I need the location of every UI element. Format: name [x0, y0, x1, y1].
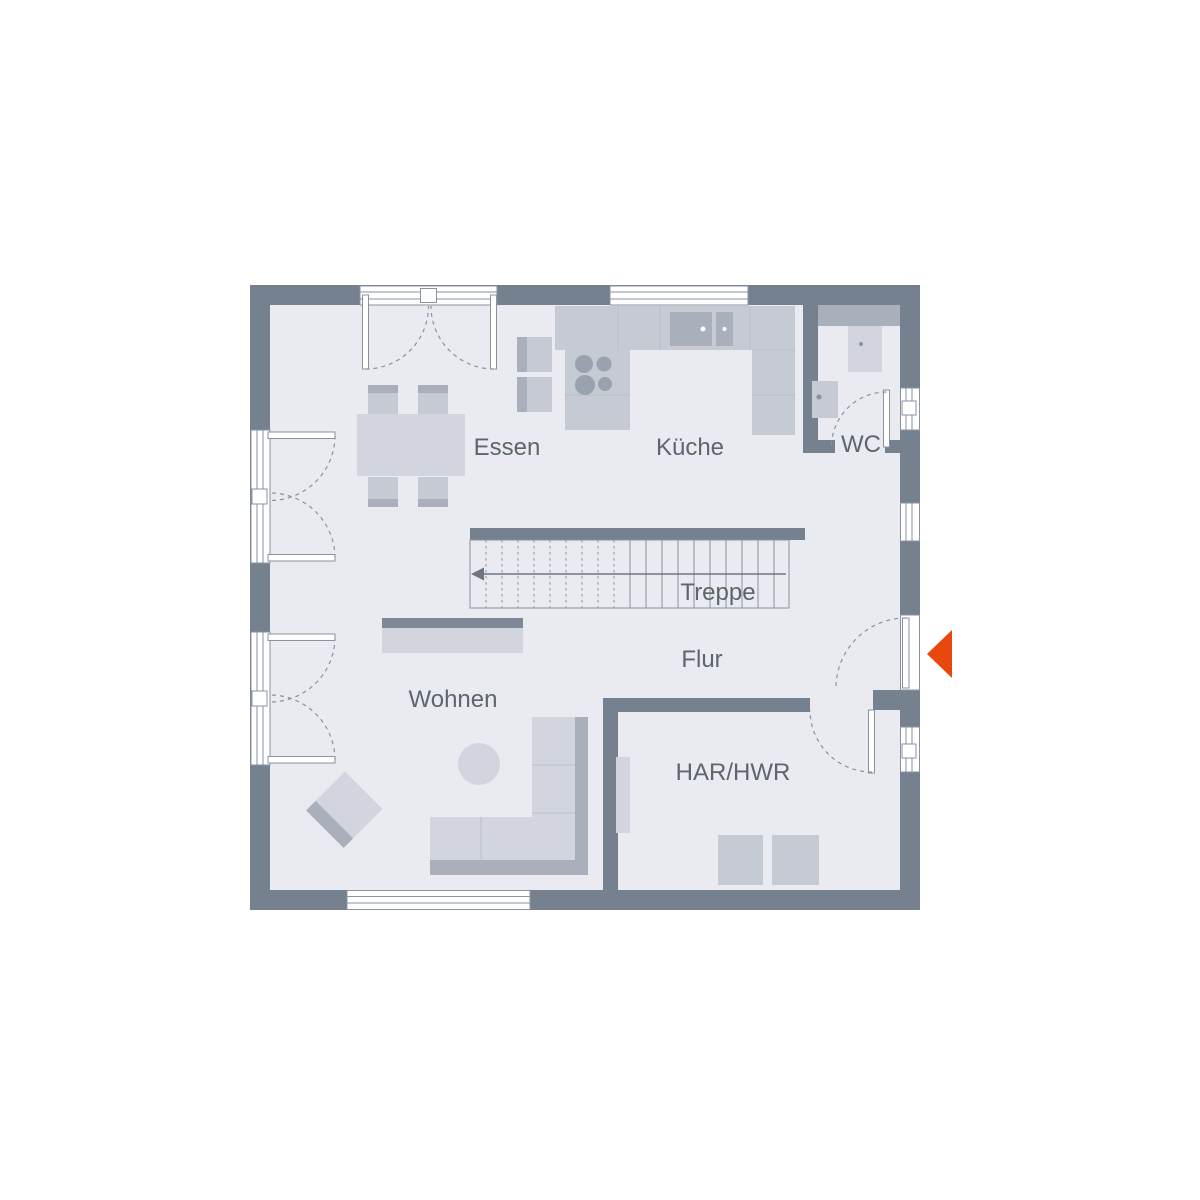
window-frame: [610, 286, 748, 305]
dining-chair: [368, 385, 398, 415]
dining-chair: [418, 385, 448, 415]
burner: [598, 377, 612, 391]
wc-window: [901, 388, 920, 430]
door-leaf-right: [491, 295, 497, 369]
door-handle: [252, 489, 267, 504]
burner: [597, 357, 612, 372]
room-label-kueche: Küche: [656, 434, 724, 461]
dining-chair: [418, 477, 448, 507]
kitchen-counter-right: [752, 306, 795, 435]
utility-top-wall: [603, 698, 810, 712]
utility-window: [901, 727, 920, 772]
door-leaf-top: [268, 432, 335, 439]
burner: [575, 355, 593, 373]
window-frame: [347, 891, 530, 910]
stairs-upper-flight-wall: [470, 528, 805, 540]
room-label-treppe: Treppe: [680, 579, 755, 606]
door-leaf: [903, 618, 910, 688]
sofa-backrest-bottom: [430, 860, 588, 875]
door-leaf-bottom: [268, 757, 335, 764]
wc-toilet: [812, 381, 838, 418]
tall-cabinet: [517, 377, 552, 412]
faucet-dot: [723, 327, 727, 331]
burner: [575, 375, 595, 395]
room-label-har-hwr: HAR/HWR: [676, 759, 791, 786]
sofa-backrest-right: [575, 717, 588, 875]
wc-counter: [818, 305, 900, 326]
door-handle: [421, 289, 437, 303]
door-leaf-top: [268, 634, 335, 641]
coffee-table: [458, 743, 500, 785]
utility-left-wall: [603, 700, 618, 890]
sofa-seats-vertical: [532, 717, 575, 860]
door-leaf-bottom: [268, 555, 335, 562]
dryer: [772, 835, 819, 885]
dining-table: [357, 414, 465, 476]
hall-furniture: [382, 618, 523, 653]
wc-left-wall: [803, 305, 818, 453]
toilet-dot: [817, 395, 822, 400]
dining-chair: [368, 477, 398, 507]
door-leaf-left: [363, 295, 369, 369]
entrance-arrow-icon: [927, 630, 952, 678]
wc-bottom-wall: [803, 440, 835, 453]
kitchen-sink: [670, 312, 712, 346]
room-label-wohnen: Wohnen: [409, 686, 498, 713]
kitchen-window: [610, 286, 748, 305]
faucet-dot: [701, 327, 706, 332]
living-room-window: [347, 891, 530, 910]
window-handle: [902, 744, 916, 758]
window-handle: [902, 401, 916, 415]
tall-cabinet: [517, 337, 552, 372]
door-handle: [252, 691, 267, 706]
floor-plan: Essen Küche WC Treppe Flur Wohnen HAR/HW…: [0, 0, 1200, 1200]
room-label-flur: Flur: [681, 646, 722, 673]
room-label-wc: WC: [841, 431, 881, 458]
door-leaf: [869, 710, 875, 773]
sideboard: [382, 618, 523, 653]
wc-sink: [848, 326, 882, 372]
washing-machine: [718, 835, 763, 885]
faucet-dot: [859, 342, 863, 346]
window-frame: [901, 503, 920, 541]
door-leaf: [884, 390, 890, 447]
utility-top-wall-stub: [873, 690, 900, 710]
room-label-essen: Essen: [474, 434, 541, 461]
shelf: [616, 757, 630, 833]
hall-window: [901, 503, 920, 541]
